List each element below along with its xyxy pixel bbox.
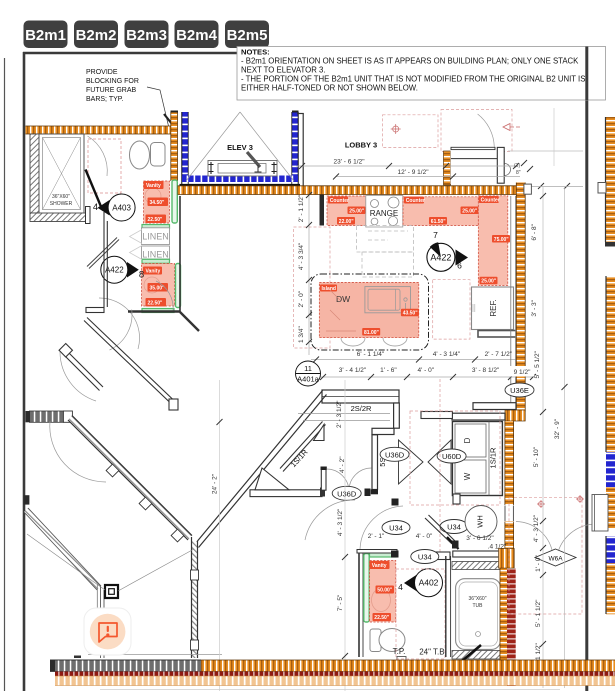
- svg-text:22.00": 22.00": [339, 219, 355, 225]
- svg-text:36"X60": 36"X60": [52, 194, 70, 200]
- svg-text:1S/1R: 1S/1R: [489, 447, 498, 468]
- svg-text:U60D: U60D: [442, 452, 462, 461]
- svg-text:W6A: W6A: [548, 556, 563, 563]
- svg-text:43.50": 43.50": [403, 311, 419, 317]
- svg-text:- THE PORTION OF THE B2m1 UNIT: - THE PORTION OF THE B2m1 UNIT THAT IS N…: [241, 75, 585, 84]
- svg-text:T.P.: T.P.: [393, 647, 406, 656]
- svg-text:1' - 0": 1' - 0": [535, 555, 542, 572]
- svg-text:23' - 6 1/2": 23' - 6 1/2": [333, 159, 365, 166]
- svg-text:50.00": 50.00": [377, 588, 393, 594]
- svg-text:2S/2R: 2S/2R: [351, 404, 372, 413]
- svg-text:LINEN: LINEN: [142, 250, 169, 260]
- svg-text:4: 4: [93, 202, 98, 213]
- svg-text:6' - 1 1/4": 6' - 1 1/4": [357, 351, 385, 358]
- svg-text:4' - 3 3/4": 4' - 3 3/4": [298, 242, 305, 270]
- svg-text:U36E: U36E: [510, 386, 529, 395]
- svg-text:2' - 0": 2' - 0": [298, 290, 305, 307]
- svg-text:REF.: REF.: [489, 299, 498, 316]
- svg-text:TUB: TUB: [473, 603, 484, 609]
- svg-text:Counter: Counter: [406, 198, 425, 204]
- svg-text:Vanity: Vanity: [146, 183, 161, 189]
- svg-text:4' - 3 1/4": 4' - 3 1/4": [433, 351, 461, 358]
- svg-text:5' - 5 1/2": 5' - 5 1/2": [534, 350, 541, 378]
- svg-text:SHOWER: SHOWER: [50, 201, 73, 207]
- svg-text:34.50": 34.50": [150, 200, 166, 206]
- svg-text:Vanity: Vanity: [372, 563, 387, 569]
- svg-text:22.50": 22.50": [374, 615, 390, 621]
- svg-text:4' - 3 1/2": 4' - 3 1/2": [533, 514, 540, 542]
- svg-text:35.00": 35.00": [150, 286, 166, 292]
- svg-text:BARS; TYP.: BARS; TYP.: [86, 96, 124, 103]
- svg-text:U36D: U36D: [385, 450, 405, 459]
- svg-text:U34: U34: [389, 524, 403, 533]
- svg-text:A402: A402: [419, 578, 439, 588]
- svg-text:B2m4: B2m4: [176, 27, 218, 44]
- svg-text:3' - 4 1/2": 3' - 4 1/2": [339, 367, 367, 374]
- svg-text:4' - 0": 4' - 0": [416, 533, 433, 540]
- svg-text:25.00": 25.00": [481, 279, 497, 285]
- svg-text:2' - 3 1/2": 2' - 3 1/2": [336, 400, 343, 428]
- svg-text:U36D: U36D: [337, 489, 357, 498]
- svg-text:36"X60": 36"X60": [468, 596, 486, 602]
- svg-text:9 1/2": 9 1/2": [514, 369, 531, 376]
- svg-text:B2m1: B2m1: [25, 27, 66, 44]
- svg-text:8": 8": [516, 170, 521, 176]
- svg-text:B2m2: B2m2: [76, 27, 117, 44]
- svg-text:11: 11: [304, 364, 312, 373]
- svg-text:A401a: A401a: [297, 375, 320, 384]
- svg-text:5' - 10": 5' - 10": [533, 446, 540, 467]
- svg-text:22.50": 22.50": [148, 217, 164, 223]
- svg-text:5' - 1 1/2": 5' - 1 1/2": [535, 599, 542, 627]
- svg-text:24" T.B.: 24" T.B.: [419, 648, 447, 657]
- svg-text:NOTES:: NOTES:: [241, 48, 270, 57]
- svg-text:3' - 8 1/2": 3' - 8 1/2": [472, 367, 500, 374]
- svg-text:DW: DW: [336, 294, 350, 304]
- svg-text:Vanity: Vanity: [146, 269, 161, 275]
- svg-text:LINEN: LINEN: [142, 232, 169, 242]
- svg-text:Counter: Counter: [330, 198, 349, 204]
- svg-text:PROVIDE: PROVIDE: [86, 69, 118, 76]
- svg-text:B2m3: B2m3: [126, 27, 167, 44]
- svg-text:8: 8: [139, 270, 144, 281]
- svg-text:6: 6: [457, 261, 462, 271]
- svg-text:22.50": 22.50": [148, 301, 164, 307]
- svg-text:25.00": 25.00": [349, 208, 365, 214]
- svg-text:A403: A403: [112, 204, 131, 213]
- svg-text:U34: U34: [418, 553, 432, 562]
- svg-text:75.00": 75.00": [494, 237, 510, 243]
- svg-text:BLOCKING FOR: BLOCKING FOR: [86, 78, 139, 85]
- svg-text:FUTURE GRAB: FUTURE GRAB: [86, 87, 137, 94]
- svg-text:Counter: Counter: [481, 198, 500, 204]
- svg-text:B2m5: B2m5: [227, 27, 268, 44]
- svg-text:NEXT TO ELEVATOR 3.: NEXT TO ELEVATOR 3.: [241, 66, 326, 75]
- svg-text:U34: U34: [447, 523, 461, 532]
- svg-text:2' - 1": 2' - 1": [368, 533, 385, 540]
- svg-text:LOBBY 3: LOBBY 3: [345, 141, 377, 150]
- svg-text:RANGE: RANGE: [370, 209, 398, 218]
- svg-text:WH: WH: [476, 515, 485, 528]
- svg-text:Island: Island: [322, 286, 336, 292]
- svg-text:25.00": 25.00": [462, 208, 478, 214]
- svg-text:6' - 8": 6' - 8": [531, 223, 538, 240]
- svg-text:7: 7: [433, 230, 438, 240]
- svg-text:1 3/4": 1 3/4": [298, 326, 305, 343]
- svg-text:4' - 0": 4' - 0": [418, 367, 435, 374]
- svg-text:4' - 3 1/2": 4' - 3 1/2": [337, 508, 344, 536]
- svg-text:32' - 9": 32' - 9": [554, 418, 561, 439]
- svg-text:81.00": 81.00": [364, 330, 380, 336]
- svg-text:2' - 1 1/2": 2' - 1 1/2": [298, 194, 305, 222]
- svg-text:D: D: [463, 437, 472, 443]
- svg-text:EITHER HALF-TONED OR NOT SHOWN: EITHER HALF-TONED OR NOT SHOWN BELOW.: [241, 84, 418, 93]
- svg-text:- B2m1 ORIENTATION ON SHEET IS: - B2m1 ORIENTATION ON SHEET IS AS IT APP…: [241, 57, 579, 66]
- svg-text:1' - 6": 1' - 6": [380, 367, 397, 374]
- svg-text:(3): (3): [514, 163, 520, 169]
- svg-text:61.50": 61.50": [431, 219, 447, 225]
- svg-text:24' - 2": 24' - 2": [212, 473, 219, 494]
- svg-text:3' - 3": 3' - 3": [531, 299, 538, 316]
- svg-text:A422: A422: [430, 253, 451, 263]
- svg-text:ELEV 3: ELEV 3: [227, 143, 253, 152]
- svg-text:3' - 6 1/2": 3' - 6 1/2": [466, 535, 494, 542]
- svg-text:W: W: [463, 472, 472, 480]
- svg-text:7' - 5": 7' - 5": [337, 594, 344, 611]
- svg-text:4: 4: [398, 582, 403, 592]
- svg-text:12' - 9 1/2": 12' - 9 1/2": [397, 169, 429, 176]
- svg-text:2' - 7 1/2": 2' - 7 1/2": [485, 351, 513, 358]
